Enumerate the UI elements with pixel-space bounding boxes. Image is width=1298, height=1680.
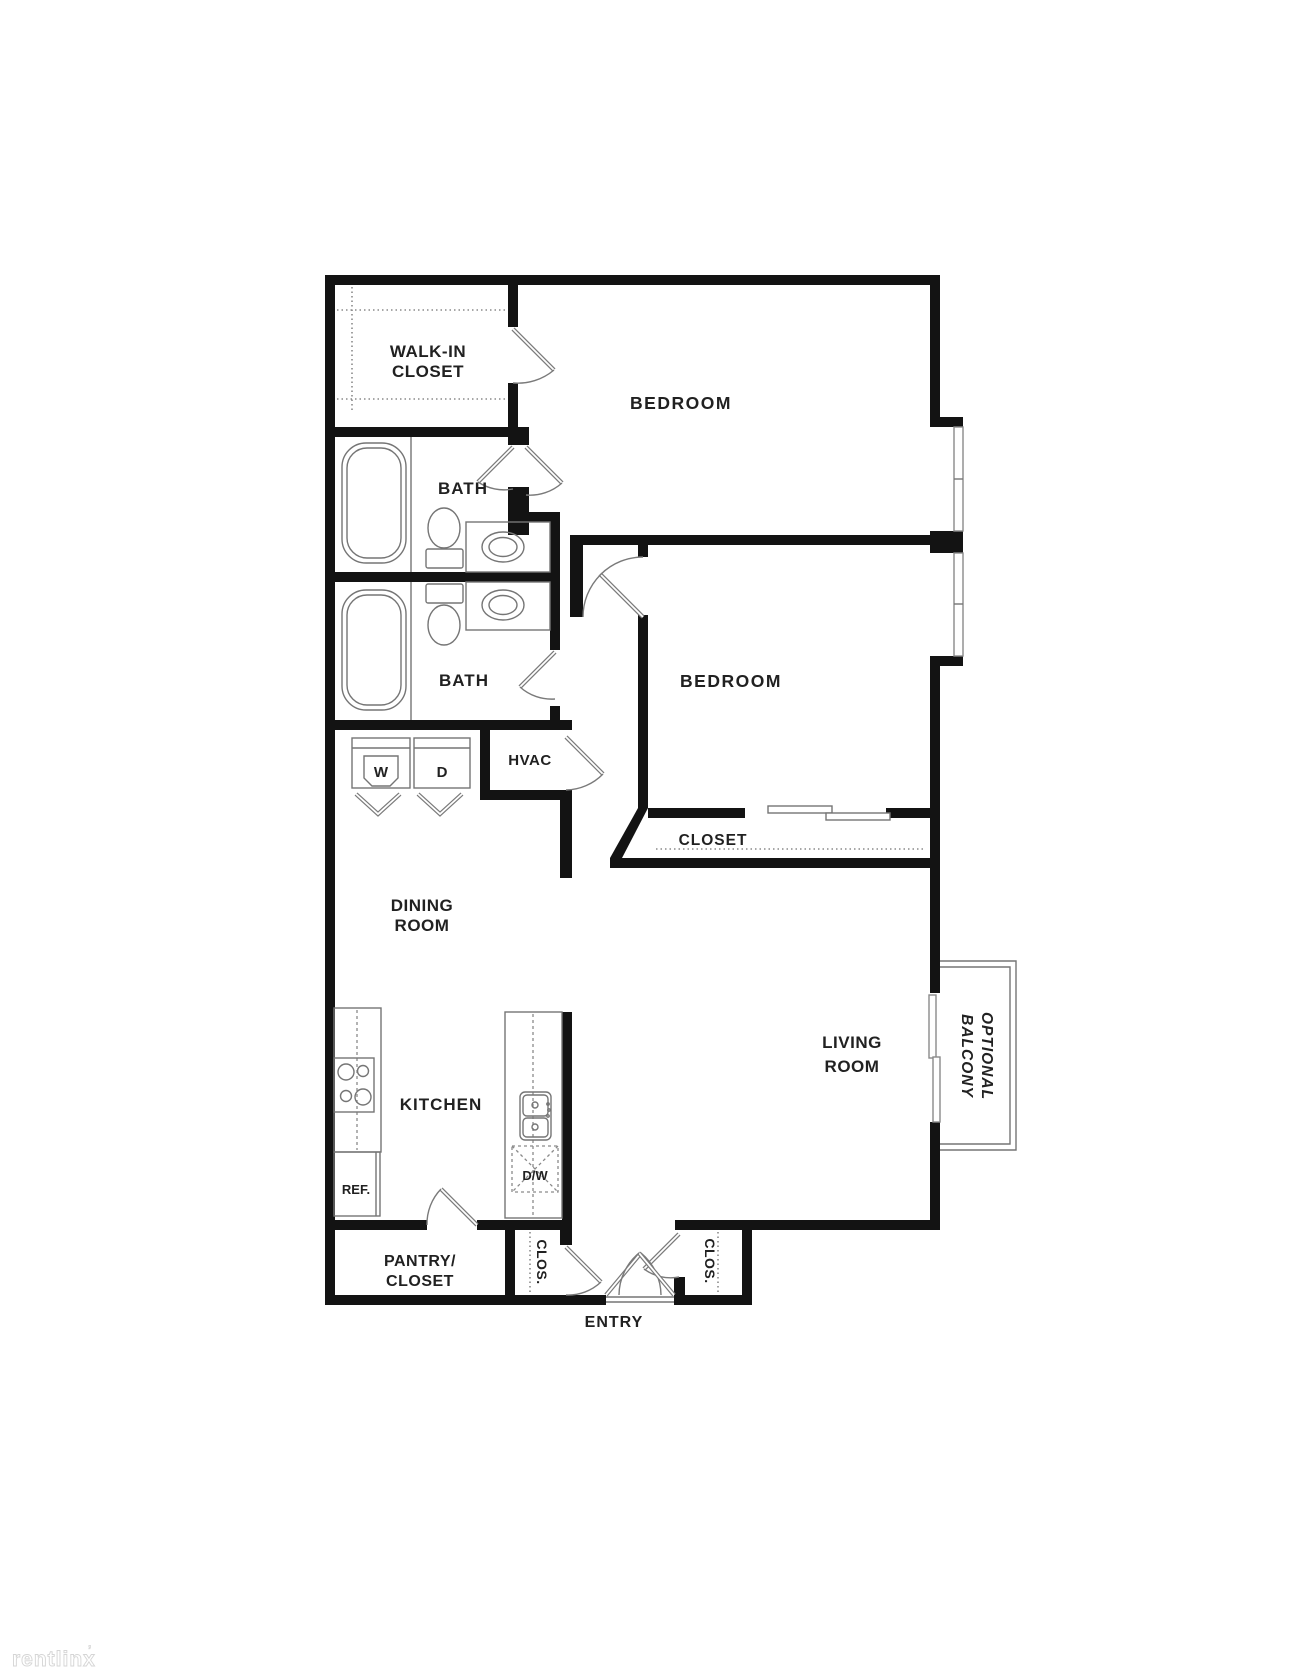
wall-top: [325, 275, 940, 285]
entry-label: ENTRY: [585, 1314, 644, 1331]
closet-right-label: CLOS.: [702, 1238, 718, 1283]
wall-window-jog2: [930, 656, 963, 666]
pantry-label-line2: CLOSET: [386, 1273, 454, 1290]
kitchen-sink-basin1: [523, 1095, 548, 1116]
dryer-label: D: [437, 764, 448, 781]
wall-bottom-a: [325, 1295, 606, 1305]
hvac-door-arc: [566, 774, 603, 790]
dryer-swing-chevron: [418, 794, 462, 814]
refrigerator-label: REF.: [342, 1182, 370, 1197]
closet-slider-door2: [826, 813, 890, 820]
burner-1: [338, 1064, 354, 1080]
rightclos-door-arc: [644, 1269, 679, 1278]
pantry-label-line1: PANTRY/: [384, 1253, 456, 1270]
wall-kitchen-bottom-a: [325, 1220, 427, 1230]
wall-wic-right-top: [508, 275, 518, 327]
wall-bedroom2-stub: [570, 545, 583, 617]
wic-door-arc: [513, 370, 554, 383]
wall-bath1-jog: [508, 512, 560, 522]
sink1-inner: [489, 538, 517, 557]
wall-closet-front-a: [648, 808, 745, 818]
sink2-inner: [489, 596, 517, 615]
dining-label-line2: ROOM: [395, 916, 450, 935]
washer-label: W: [374, 764, 389, 781]
bathtub2: [342, 590, 406, 710]
vanity2: [466, 582, 550, 630]
hvac-label: HVAC: [508, 752, 551, 769]
toilet1-bowl: [428, 508, 460, 548]
floor-plan-drawing: WALK-IN CLOSET BEDROOM BATH BATH BEDROOM…: [0, 0, 1298, 1680]
watermark-text: rentlinx: [12, 1648, 96, 1671]
balcony-slider-panel2: [933, 1057, 940, 1122]
wall-rightclos-post: [674, 1277, 685, 1297]
bedroom-top-label: BEDROOM: [630, 393, 732, 413]
wall-bottom-b: [674, 1295, 752, 1305]
bath1-door-leaf-inner: [478, 447, 513, 482]
balcony-label-line2: BALCONY: [958, 1014, 975, 1098]
burner-3: [341, 1091, 352, 1102]
kitchen-label: KITCHEN: [400, 1095, 483, 1114]
balcony-slider-panel1: [929, 995, 936, 1058]
wall-closet-diagonal: [610, 808, 648, 858]
living-label-line1: LIVING: [822, 1033, 882, 1052]
washer-swing-chevron: [356, 794, 400, 814]
toilet2-tank: [426, 584, 463, 603]
kitchen-sink-basin2: [523, 1118, 548, 1137]
sink-drain-2: [532, 1124, 538, 1130]
walk-in-closet-label-line1: WALK-IN: [390, 342, 466, 361]
wall-hvac-left: [480, 730, 490, 800]
bedroom2-door-leaf-inner: [600, 574, 643, 617]
hvac-door-leaf-inner: [566, 737, 603, 774]
bath-bottom-label: BATH: [439, 671, 489, 690]
burner-2: [358, 1066, 369, 1077]
faucet-dot-3: [547, 1115, 549, 1117]
pantry-door-arc: [427, 1189, 441, 1225]
bathtub1: [342, 443, 406, 563]
walk-in-closet-label-line2: CLOSET: [392, 362, 464, 381]
closet-slider-door1: [768, 806, 832, 813]
wall-bath2-bottom: [325, 720, 572, 730]
kitchen-peninsula: [505, 1012, 562, 1218]
wall-leftclos-post: [560, 1230, 572, 1245]
wall-bath1-jamb-top: [508, 437, 529, 445]
balcony-rail-outer: [940, 961, 1016, 1150]
wall-right-low: [930, 1122, 940, 1230]
room-labels: WALK-IN CLOSET BEDROOM BATH BATH BEDROOM…: [342, 342, 995, 1331]
wall-kitchen-right: [562, 1012, 572, 1220]
watermark: rentlinx ’: [12, 1643, 96, 1671]
wall-closet-front-b: [886, 808, 930, 818]
wall-bath-divider: [325, 572, 560, 582]
closet-right-label-text: CLOS.: [702, 1238, 718, 1283]
balcony-railing: [940, 961, 1016, 1150]
bedroom1-door-leaf-inner: [526, 447, 562, 483]
walls: [325, 275, 963, 1305]
faucet-dot-2: [548, 1109, 550, 1111]
balcony-label-line1: OPTIONAL: [978, 1012, 995, 1100]
toilet1-tank: [426, 549, 463, 568]
bathtub1-inner: [347, 448, 401, 558]
wall-bedroom-divider-right: [648, 535, 940, 545]
wall-window-jog1: [930, 417, 963, 427]
balcony-label: OPTIONAL BALCONY: [958, 1012, 995, 1100]
bath2-door-leaf-inner: [520, 652, 555, 687]
fixtures: [334, 287, 926, 1293]
wic-door-leaf-inner: [513, 329, 554, 370]
leftclos-door-arc: [566, 1282, 601, 1295]
wall-bath1-jamb-bottom: [508, 487, 529, 535]
living-label-line2: ROOM: [825, 1057, 880, 1076]
dishwasher-label: D/W: [522, 1168, 548, 1183]
wall-right-mid: [930, 666, 940, 993]
floor-plan-page: WALK-IN CLOSET BEDROOM BATH BATH BEDROOM…: [0, 0, 1298, 1680]
wall-closet-bottom: [610, 858, 940, 868]
toilet2-bowl: [428, 605, 460, 645]
wall-window-chunk: [930, 531, 963, 553]
wall-wic-bottom: [325, 427, 529, 437]
bath-top-label: BATH: [438, 479, 488, 498]
dryer-swing-chevron-inner: [418, 794, 462, 814]
bath2-door-arc: [520, 687, 555, 699]
bedroom-bottom-label: BEDROOM: [680, 671, 782, 691]
wall-right-top: [930, 275, 940, 417]
closet-left-label: CLOS.: [534, 1239, 550, 1284]
bedroom1-door-arc: [526, 483, 562, 495]
wall-pantry-right: [505, 1230, 515, 1297]
bedroom-closet-label: CLOSET: [679, 832, 748, 849]
wall-bedroom2-west-top: [638, 545, 648, 557]
wall-wic-right-bottom: [508, 383, 518, 427]
wall-living-bottom: [675, 1220, 940, 1230]
watermark-mark: ’: [88, 1643, 91, 1657]
wall-bedroom2-west: [638, 615, 648, 808]
closet-left-label-text: CLOS.: [534, 1239, 550, 1284]
wall-hvac-bottom: [480, 790, 572, 800]
wall-corridor-a: [550, 522, 560, 650]
wall-bedroom-divider-left: [570, 535, 648, 545]
pantry-door-leaf-inner: [441, 1189, 477, 1225]
dining-label-line1: DINING: [391, 896, 454, 915]
wall-hvac-stub: [560, 800, 572, 878]
washer-swing-chevron-inner: [356, 794, 400, 814]
wall-kitchen-bottom-b: [477, 1220, 572, 1230]
bathtub2-inner: [347, 595, 401, 705]
leftclos-door-leaf-inner: [566, 1247, 601, 1282]
wall-rightclos-right: [742, 1230, 752, 1305]
